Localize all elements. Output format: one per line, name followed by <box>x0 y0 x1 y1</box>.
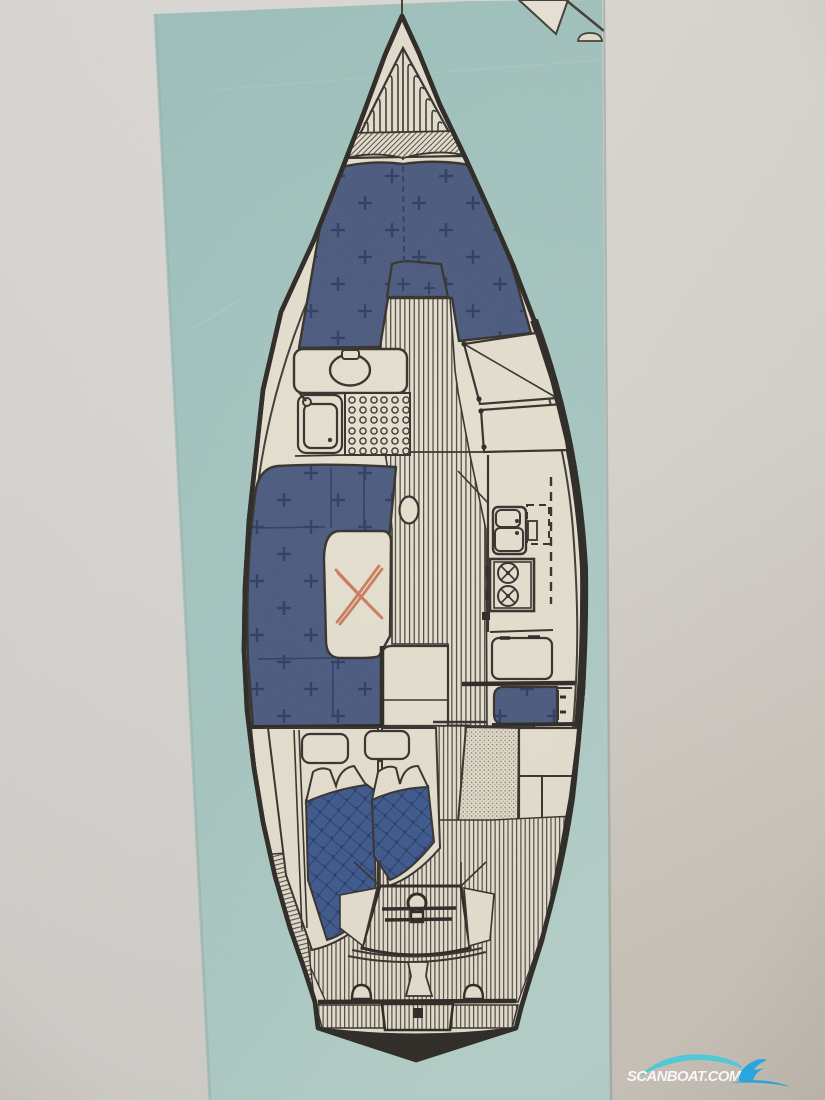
svg-text:SCANBOAT.COM: SCANBOAT.COM <box>627 1068 742 1085</box>
